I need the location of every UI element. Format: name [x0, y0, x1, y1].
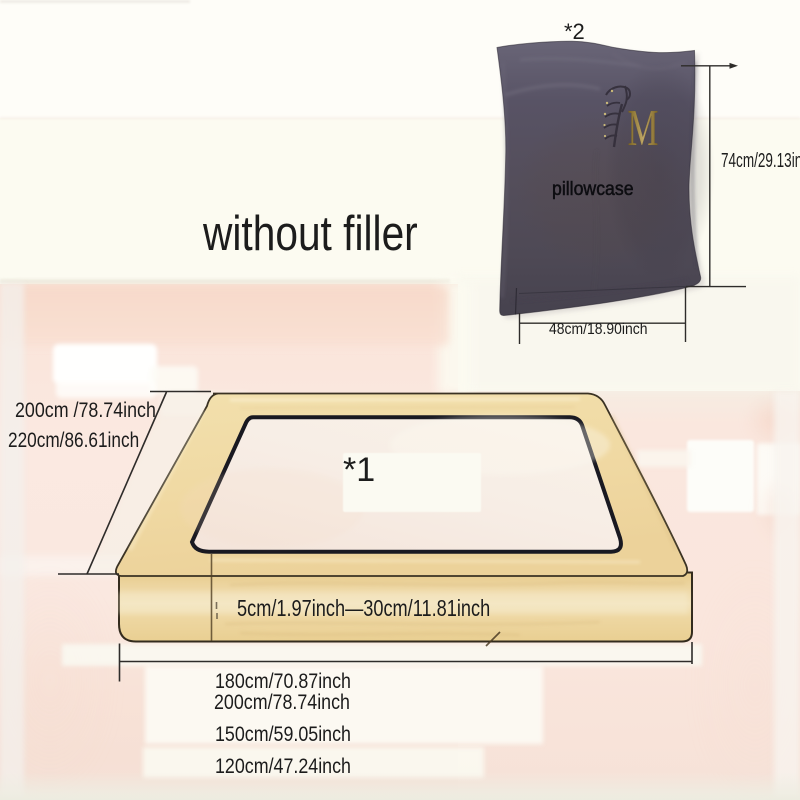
- svg-text:M: M: [628, 100, 659, 157]
